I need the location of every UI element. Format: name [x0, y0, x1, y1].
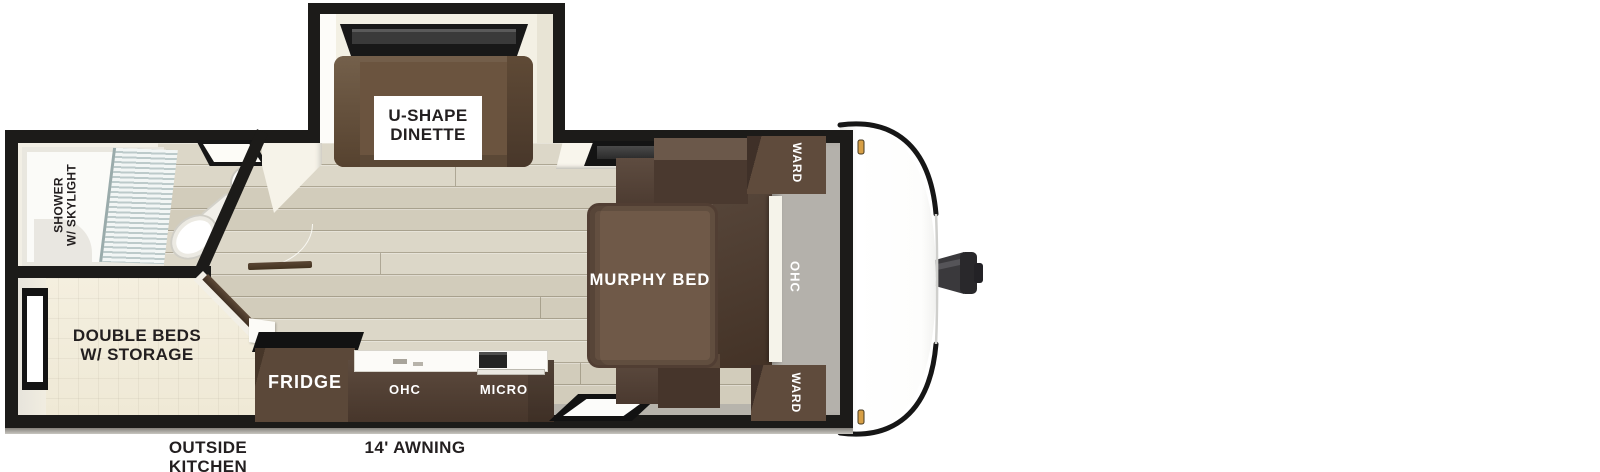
- bedroom-divider-wall: [5, 266, 211, 278]
- sink-mark: [393, 359, 407, 364]
- sink-mark: [413, 362, 423, 366]
- bed-headboard-panel: [769, 196, 782, 362]
- double-beds-label-line2: W/ STORAGE: [57, 345, 217, 364]
- shower-label-line1: SHOWER: [53, 164, 66, 246]
- awning-label: 14' AWNING: [340, 438, 490, 457]
- dinette-label-line1: U-SHAPE: [374, 106, 482, 125]
- marker-light-bottom: [858, 410, 864, 424]
- outside-kitchen-label: OUTSIDE KITCHEN: [138, 438, 278, 472]
- floorplan-canvas: OHC U-SHAPE DINETTE SHOWER W/ SKYLIGHT: [0, 0, 1600, 472]
- bed-rear-cabinet: [710, 188, 772, 368]
- dinette-label-box: U-SHAPE DINETTE: [374, 96, 482, 160]
- wardrobe-bottom-label: WARD: [789, 373, 803, 414]
- micro-ledge: [477, 369, 545, 375]
- fridge-label: FRIDGE: [258, 372, 352, 393]
- dinette-label-line2: DINETTE: [374, 125, 482, 144]
- dinette-left-arm: [334, 56, 360, 167]
- plank-joint: [455, 165, 456, 186]
- countertop: [354, 350, 548, 372]
- trailer-front-cap: [836, 116, 996, 456]
- shower-label-line2: W/ SKYLIGHT: [66, 164, 79, 246]
- plank-joint: [540, 297, 541, 318]
- front-cap-edge: [936, 214, 937, 344]
- bottom-wall-shadow: [5, 428, 853, 434]
- outside-kitchen-label-line1: OUTSIDE: [138, 438, 278, 457]
- plank-joint: [380, 253, 381, 274]
- front-ohc-label: OHC: [788, 261, 803, 293]
- plank-joint: [580, 363, 581, 384]
- double-beds-label-line1: DOUBLE BEDS: [57, 326, 217, 345]
- cooktop: [479, 352, 507, 368]
- shower-label: SHOWER W/ SKYLIGHT: [53, 164, 80, 246]
- micro-label: MICRO: [473, 382, 535, 397]
- wardrobe-top-label: WARD: [790, 143, 804, 184]
- outside-kitchen-label-line2: KITCHEN: [138, 457, 278, 472]
- wardrobe-top: [747, 136, 826, 194]
- front-cap-body: [840, 125, 936, 433]
- dinette-window-glass: [352, 29, 516, 44]
- murphy-bed-label: MURPHY BED: [585, 271, 715, 290]
- bedroom-window: [27, 296, 43, 382]
- dinette-right-arm: [507, 56, 533, 167]
- double-beds-label: DOUBLE BEDS W/ STORAGE: [57, 326, 217, 364]
- kitchen-ohc-label: OHC: [375, 382, 435, 397]
- overhead-cabinet-top: [654, 138, 748, 204]
- marker-light-top: [858, 140, 864, 154]
